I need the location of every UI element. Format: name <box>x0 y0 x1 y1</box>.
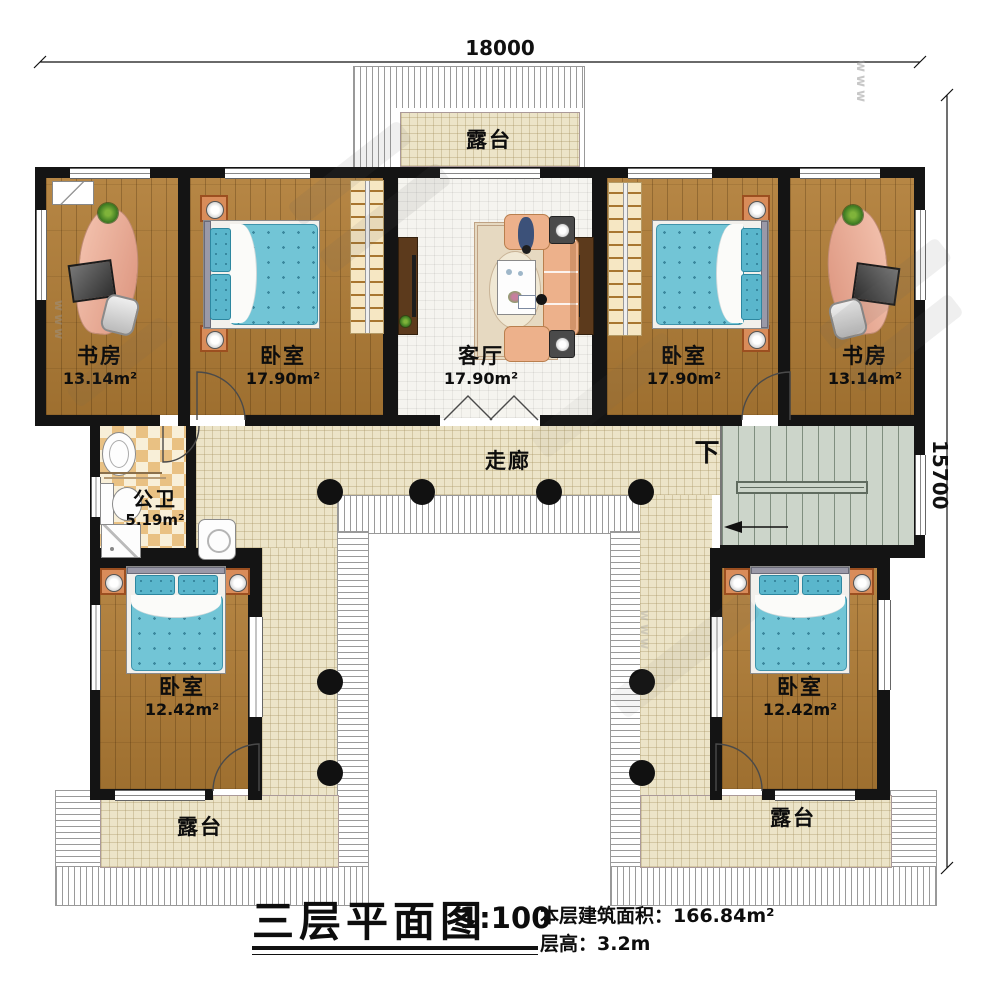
column <box>629 760 655 786</box>
bed-lower-left <box>126 566 226 674</box>
title-underline-thin <box>252 954 538 955</box>
floor-plan: 18000 15700 露台 书房 13.14m² 卧室 17.90m² 客厅 … <box>0 0 1000 990</box>
lamp-icon <box>853 574 871 592</box>
stairs-direction-label: 下 <box>690 438 726 468</box>
room-label-bedroom-upper-left: 卧室 17.90m² <box>233 344 333 388</box>
wall-llwing-south-b <box>255 789 262 800</box>
towel-bar <box>100 472 162 474</box>
dimension-right-label: 15700 <box>928 440 952 510</box>
column <box>317 669 343 695</box>
room-label-living: 客厅 17.90m² <box>431 344 531 388</box>
room-label-bedroom-lower-left: 卧室 12.42m² <box>132 675 232 719</box>
side-table <box>549 330 575 358</box>
nightstand <box>742 195 770 222</box>
plant-study-left <box>98 203 118 223</box>
lamp-icon <box>748 331 766 349</box>
plan-scale: 1:100 <box>459 901 551 935</box>
window-studyL-west <box>36 210 47 300</box>
room-label-corridor: 走廊 <box>463 449 553 474</box>
nightstand <box>224 568 250 595</box>
floor-height-text: 层高：3.2m <box>540 929 650 956</box>
plan-title: 三层平面图 <box>252 888 487 949</box>
window-stairs-east <box>915 455 926 535</box>
room-label-terrace-top: 露台 <box>444 128 534 153</box>
towel-bar <box>104 477 166 479</box>
staircase-handrail <box>736 481 868 494</box>
dimension-top-label: 18000 <box>455 36 545 60</box>
sink <box>102 432 136 476</box>
nightstand <box>100 568 126 595</box>
lamp-icon <box>206 201 224 219</box>
window-llwing-south <box>115 790 205 801</box>
watermark-www-text: www <box>638 610 652 652</box>
person-reading-book <box>518 295 536 309</box>
window-llwing-east <box>249 617 263 717</box>
room-label-bedroom-lower-right: 卧室 12.42m² <box>750 675 850 719</box>
wardrobe-bedroomR <box>608 182 642 336</box>
corner-cabinet <box>52 181 94 205</box>
lamp-icon <box>206 331 224 349</box>
wall-studyL-bedroomL <box>178 167 190 426</box>
floor-area-text: 本层建筑面积：166.84m² <box>540 901 774 928</box>
plant-study-right <box>843 205 863 225</box>
window-studyR-north <box>800 168 880 179</box>
wall-stairs-south <box>720 545 925 558</box>
nightstand <box>742 325 770 352</box>
nightstand <box>724 568 750 595</box>
room-label-terrace-lower-left: 露台 <box>155 815 245 840</box>
nightstand <box>200 325 228 352</box>
person-reading-head <box>536 294 547 305</box>
room-label-bathroom: 公卫 5.19m² <box>110 487 200 529</box>
wall-bedroomR-studyR <box>778 167 790 426</box>
column <box>317 760 343 786</box>
person-head <box>522 245 531 254</box>
lamp-icon <box>748 201 766 219</box>
nightstand <box>200 195 228 222</box>
room-label-terrace-lower-right: 露台 <box>748 806 838 831</box>
side-table <box>549 216 575 244</box>
window-bedroomR-north <box>628 168 712 179</box>
bed-upper-right <box>652 220 769 329</box>
wall-upper-bottom-d <box>790 415 925 426</box>
window-studyL-north <box>70 168 150 179</box>
watermark-www-text: www <box>853 60 868 105</box>
roof-band-courtyard-left <box>337 531 369 870</box>
window-living-terrace-door <box>440 168 540 179</box>
lamp-icon <box>105 574 123 592</box>
column <box>317 479 343 505</box>
plant-living <box>400 316 411 327</box>
lamp-icon <box>555 223 570 238</box>
window-llwing-west <box>91 605 101 690</box>
bed-lower-right <box>750 566 850 674</box>
nightstand <box>848 568 874 595</box>
window-lrwing-east <box>878 600 891 690</box>
window-bedroomL-north <box>225 168 310 179</box>
wall-upper-bottom-b <box>245 415 440 426</box>
watermark-www-text: www <box>52 300 66 342</box>
column <box>409 479 435 505</box>
lamp-icon <box>729 574 747 592</box>
column <box>628 479 654 505</box>
lamp-icon <box>555 337 570 352</box>
roof-band-bottom-right <box>610 866 937 906</box>
sofa-main <box>543 238 579 336</box>
roof-band-courtyard-top <box>337 495 642 534</box>
wall-lrwing-south-a <box>710 789 716 800</box>
washing-machine <box>198 519 236 560</box>
title-underline-thick <box>252 946 538 950</box>
window-lrwing-south <box>775 790 855 801</box>
shower <box>101 524 141 558</box>
bed-upper-left <box>203 220 320 329</box>
lamp-icon <box>229 574 247 592</box>
column <box>536 479 562 505</box>
